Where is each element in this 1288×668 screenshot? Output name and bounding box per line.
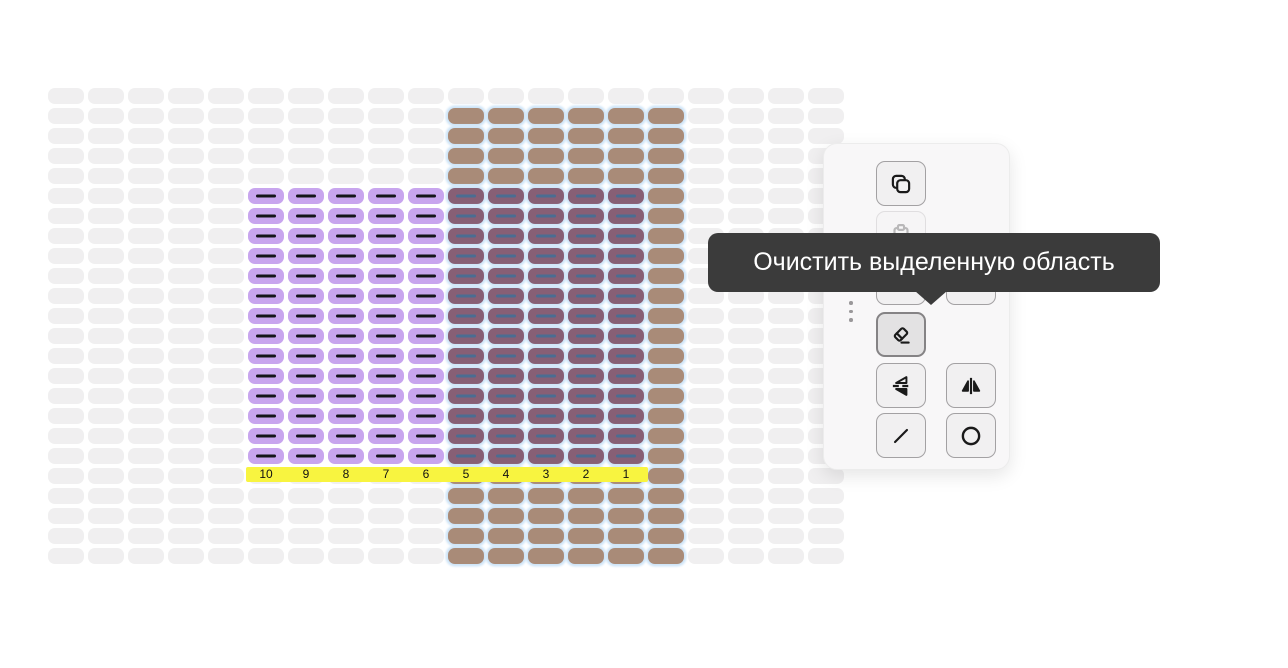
grid-cell[interactable] [448,388,484,404]
grid-cell[interactable] [248,88,284,104]
grid-cell[interactable] [288,508,324,524]
grid-cell[interactable] [768,348,804,364]
grid-cell[interactable] [488,268,524,284]
grid-cell[interactable] [328,368,364,384]
grid-cell[interactable] [448,548,484,564]
grid-cell[interactable] [288,528,324,544]
grid-cell[interactable] [768,508,804,524]
grid-cell[interactable] [448,508,484,524]
grid-cell[interactable] [608,368,644,384]
grid-cell[interactable] [208,228,244,244]
grid-cell[interactable] [608,108,644,124]
circle-tool-button[interactable] [946,413,996,458]
grid-cell[interactable] [128,388,164,404]
grid-cell[interactable] [808,128,844,144]
grid-cell[interactable] [248,268,284,284]
grid-cell[interactable] [88,248,124,264]
grid-cell[interactable] [128,428,164,444]
grid-cell[interactable] [488,548,524,564]
grid-cell[interactable] [88,408,124,424]
grid-cell[interactable] [568,228,604,244]
grid-cell[interactable] [608,528,644,544]
grid-cell[interactable] [728,148,764,164]
grid-cell[interactable] [128,108,164,124]
grid-cell[interactable] [328,508,364,524]
grid-cell[interactable] [648,428,684,444]
grid-cell[interactable] [688,308,724,324]
grid-cell[interactable] [128,508,164,524]
grid-cell[interactable] [168,248,204,264]
grid-cell[interactable] [248,508,284,524]
grid-cell[interactable] [368,368,404,384]
grid-cell[interactable] [48,508,84,524]
grid-cell[interactable] [88,228,124,244]
grid-cell[interactable] [328,228,364,244]
grid-cell[interactable] [168,388,204,404]
grid-cell[interactable] [208,188,244,204]
grid-cell[interactable] [488,528,524,544]
grid-cell[interactable] [568,448,604,464]
grid-cell[interactable] [528,448,564,464]
grid-cell[interactable] [128,488,164,504]
grid-cell[interactable] [128,468,164,484]
grid-cell[interactable] [368,528,404,544]
grid-cell[interactable] [288,368,324,384]
grid-cell[interactable] [608,228,644,244]
grid-cell[interactable] [688,168,724,184]
grid-cell[interactable] [568,268,604,284]
grid-cell[interactable] [328,448,364,464]
grid-cell[interactable] [88,528,124,544]
grid-cell[interactable] [688,368,724,384]
grid-cell[interactable] [808,108,844,124]
grid-cell[interactable] [368,128,404,144]
grid-cell[interactable] [128,128,164,144]
grid-cell[interactable] [488,148,524,164]
grid-cell[interactable] [648,208,684,224]
grid-cell[interactable] [288,148,324,164]
grid-cell[interactable] [328,308,364,324]
grid-cell[interactable] [248,348,284,364]
grid-cell[interactable] [528,288,564,304]
grid-cell[interactable] [688,188,724,204]
grid-cell[interactable] [608,88,644,104]
grid-cell[interactable] [688,468,724,484]
grid-cell[interactable] [88,368,124,384]
grid-cell[interactable] [768,428,804,444]
grid-cell[interactable] [728,388,764,404]
grid-cell[interactable] [408,308,444,324]
grid-cell[interactable] [88,348,124,364]
grid-cell[interactable] [768,548,804,564]
grid-cell[interactable] [368,208,404,224]
grid-cell[interactable] [568,248,604,264]
grid-cell[interactable] [48,88,84,104]
grid-cell[interactable] [208,268,244,284]
grid-cell[interactable] [128,288,164,304]
grid-cell[interactable] [688,528,724,544]
grid-cell[interactable] [808,488,844,504]
grid-cell[interactable] [648,128,684,144]
grid-cell[interactable] [408,548,444,564]
grid-cell[interactable] [488,328,524,344]
grid-cell[interactable] [288,348,324,364]
grid-cell[interactable] [168,468,204,484]
grid-cell[interactable] [88,308,124,324]
grid-cell[interactable] [128,88,164,104]
grid-cell[interactable] [248,168,284,184]
grid-cell[interactable] [448,428,484,444]
grid-cell[interactable] [248,488,284,504]
grid-cell[interactable] [328,188,364,204]
grid-cell[interactable] [528,148,564,164]
grid-cell[interactable] [608,188,644,204]
grid-cell[interactable] [808,548,844,564]
grid-cell[interactable] [688,348,724,364]
grid-cell[interactable] [208,448,244,464]
grid-cell[interactable] [248,148,284,164]
grid-cell[interactable] [168,368,204,384]
grid-cell[interactable] [208,388,244,404]
grid-cell[interactable] [88,128,124,144]
grid-cell[interactable] [568,88,604,104]
grid-cell[interactable] [168,88,204,104]
grid-cell[interactable] [48,328,84,344]
grid-cell[interactable] [328,168,364,184]
grid-cell[interactable] [448,168,484,184]
grid-cell[interactable] [408,108,444,124]
grid-cell[interactable] [528,508,564,524]
grid-cell[interactable] [288,408,324,424]
grid-cell[interactable] [528,408,564,424]
grid-cell[interactable] [728,488,764,504]
grid-cell[interactable] [528,308,564,324]
grid-cell[interactable] [328,208,364,224]
grid-cell[interactable] [208,128,244,144]
grid-cell[interactable] [768,168,804,184]
grid-cell[interactable] [408,128,444,144]
grid-cell[interactable] [528,388,564,404]
grid-cell[interactable] [608,208,644,224]
grid-cell[interactable] [168,188,204,204]
grid-cell[interactable] [528,548,564,564]
grid-cell[interactable] [728,428,764,444]
grid-cell[interactable] [168,288,204,304]
grid-cell[interactable] [608,548,644,564]
grid-cell[interactable] [208,328,244,344]
grid-cell[interactable] [88,168,124,184]
grid-cell[interactable] [688,88,724,104]
grid-cell[interactable] [288,208,324,224]
grid-cell[interactable] [288,268,324,284]
grid-cell[interactable] [608,168,644,184]
grid-cell[interactable] [208,208,244,224]
grid-cell[interactable] [808,88,844,104]
grid-cell[interactable] [648,248,684,264]
grid-cell[interactable] [768,448,804,464]
grid-cell[interactable] [808,468,844,484]
grid-cell[interactable] [88,328,124,344]
grid-cell[interactable] [608,248,644,264]
grid-cell[interactable] [248,428,284,444]
grid-cell[interactable] [168,428,204,444]
grid-cell[interactable] [688,108,724,124]
grid-cell[interactable] [808,528,844,544]
grid-cell[interactable] [168,448,204,464]
grid-cell[interactable] [168,268,204,284]
grid-cell[interactable] [208,148,244,164]
grid-cell[interactable] [208,368,244,384]
grid-cell[interactable] [448,108,484,124]
grid-cell[interactable] [648,328,684,344]
grid-cell[interactable] [688,548,724,564]
grid-cell[interactable] [648,548,684,564]
grid-cell[interactable] [648,368,684,384]
grid-cell[interactable] [88,268,124,284]
grid-cell[interactable] [408,228,444,244]
grid-cell[interactable] [208,408,244,424]
grid-cell[interactable] [488,248,524,264]
grid-cell[interactable] [328,248,364,264]
grid-cell[interactable] [768,188,804,204]
grid-cell[interactable] [608,308,644,324]
grid-cell[interactable] [328,348,364,364]
grid-cell[interactable] [408,368,444,384]
grid-cell[interactable] [768,308,804,324]
grid-cell[interactable] [768,468,804,484]
grid-cell[interactable] [568,408,604,424]
grid-cell[interactable] [488,208,524,224]
grid-cell[interactable] [368,168,404,184]
grid-cell[interactable] [448,348,484,364]
grid-cell[interactable] [128,248,164,264]
grid-cell[interactable] [88,428,124,444]
grid-cell[interactable] [128,188,164,204]
grid-cell[interactable] [648,408,684,424]
grid-cell[interactable] [328,408,364,424]
grid-cell[interactable] [608,388,644,404]
grid-cell[interactable] [368,108,404,124]
grid-cell[interactable] [128,228,164,244]
grid-cell[interactable] [528,268,564,284]
grid-cell[interactable] [248,368,284,384]
grid-cell[interactable] [688,508,724,524]
grid-cell[interactable] [368,488,404,504]
grid-cell[interactable] [448,208,484,224]
grid-cell[interactable] [128,328,164,344]
grid-cell[interactable] [128,168,164,184]
grid-cell[interactable] [488,288,524,304]
grid-cell[interactable] [48,168,84,184]
grid-cell[interactable] [448,488,484,504]
grid-cell[interactable] [168,528,204,544]
grid-cell[interactable] [368,248,404,264]
grid-cell[interactable] [208,108,244,124]
grid-cell[interactable] [368,428,404,444]
grid-cell[interactable] [528,168,564,184]
grid-cell[interactable] [648,348,684,364]
grid-cell[interactable] [728,468,764,484]
grid-cell[interactable] [368,188,404,204]
grid-cell[interactable] [168,328,204,344]
grid-cell[interactable] [488,408,524,424]
grid-cell[interactable] [728,128,764,144]
grid-cell[interactable] [568,348,604,364]
grid-cell[interactable] [528,528,564,544]
grid-cell[interactable] [128,208,164,224]
grid-cell[interactable] [248,248,284,264]
grid-cell[interactable] [288,88,324,104]
grid-cell[interactable] [208,488,244,504]
grid-cell[interactable] [368,388,404,404]
grid-cell[interactable] [168,208,204,224]
grid-cell[interactable] [48,468,84,484]
grid-cell[interactable] [408,268,444,284]
grid-cell[interactable] [168,508,204,524]
grid-cell[interactable] [448,88,484,104]
grid-cell[interactable] [88,288,124,304]
grid-cell[interactable] [568,168,604,184]
grid-cell[interactable] [128,548,164,564]
grid-cell[interactable] [288,168,324,184]
grid-cell[interactable] [568,328,604,344]
grid-cell[interactable] [288,428,324,444]
grid-cell[interactable] [408,428,444,444]
grid-cell[interactable] [568,368,604,384]
grid-cell[interactable] [128,268,164,284]
grid-cell[interactable] [528,128,564,144]
grid-cell[interactable] [488,308,524,324]
grid-cell[interactable] [488,168,524,184]
grid-cell[interactable] [768,388,804,404]
grid-cell[interactable] [128,148,164,164]
grid-cell[interactable] [448,228,484,244]
grid-cell[interactable] [528,88,564,104]
grid-cell[interactable] [248,228,284,244]
grid-cell[interactable] [328,108,364,124]
grid-cell[interactable] [208,348,244,364]
grid-cell[interactable] [488,348,524,364]
grid-cell[interactable] [168,408,204,424]
grid-cell[interactable] [408,348,444,364]
grid-cell[interactable] [88,508,124,524]
grid-cell[interactable] [448,528,484,544]
grid-cell[interactable] [208,528,244,544]
grid-cell[interactable] [288,388,324,404]
grid-cell[interactable] [248,308,284,324]
grid-cell[interactable] [48,488,84,504]
flip-horizontal-button[interactable] [946,363,996,408]
grid-cell[interactable] [128,348,164,364]
grid-cell[interactable] [648,108,684,124]
grid-cell[interactable] [368,268,404,284]
grid-cell[interactable] [48,408,84,424]
grid-cell[interactable] [488,88,524,104]
grid-cell[interactable] [168,308,204,324]
grid-cell[interactable] [488,188,524,204]
grid-cell[interactable] [648,468,684,484]
grid-cell[interactable] [208,168,244,184]
grid-cell[interactable] [688,328,724,344]
grid-cell[interactable] [728,108,764,124]
grid-cell[interactable] [288,288,324,304]
grid-cell[interactable] [568,508,604,524]
grid-cell[interactable] [208,468,244,484]
grid-cell[interactable] [88,448,124,464]
grid-cell[interactable] [48,288,84,304]
grid-cell[interactable] [608,128,644,144]
grid-cell[interactable] [528,328,564,344]
grid-cell[interactable] [48,428,84,444]
grid-cell[interactable] [448,288,484,304]
grid-cell[interactable] [88,188,124,204]
grid-cell[interactable] [368,228,404,244]
grid-cell[interactable] [88,148,124,164]
grid-cell[interactable] [408,88,444,104]
grid-cell[interactable] [288,228,324,244]
grid-cell[interactable] [88,468,124,484]
grid-cell[interactable] [168,228,204,244]
grid-cell[interactable] [408,328,444,344]
grid-cell[interactable] [768,128,804,144]
grid-cell[interactable] [448,148,484,164]
grid-cell[interactable] [448,408,484,424]
grid-cell[interactable] [768,488,804,504]
grid-cell[interactable] [368,288,404,304]
grid-cell[interactable] [328,288,364,304]
grid-cell[interactable] [48,188,84,204]
grid-cell[interactable] [288,248,324,264]
grid-cell[interactable] [448,248,484,264]
grid-cell[interactable] [728,308,764,324]
grid-cell[interactable] [208,548,244,564]
eraser-button[interactable] [876,312,926,357]
grid-cell[interactable] [408,488,444,504]
grid-cell[interactable] [528,348,564,364]
grid-cell[interactable] [528,488,564,504]
grid-cell[interactable] [128,368,164,384]
grid-cell[interactable] [328,528,364,544]
grid-cell[interactable] [328,488,364,504]
grid-cell[interactable] [728,208,764,224]
grid-cell[interactable] [248,108,284,124]
grid-cell[interactable] [608,508,644,524]
grid-cell[interactable] [208,508,244,524]
grid-cell[interactable] [408,388,444,404]
grid-cell[interactable] [688,388,724,404]
grid-cell[interactable] [168,108,204,124]
grid-cell[interactable] [608,268,644,284]
grid-cell[interactable] [728,188,764,204]
grid-cell[interactable] [688,408,724,424]
grid-cell[interactable] [488,388,524,404]
grid-cell[interactable] [248,528,284,544]
grid-cell[interactable] [728,88,764,104]
grid-cell[interactable] [768,88,804,104]
grid-cell[interactable] [248,408,284,424]
grid-cell[interactable] [528,248,564,264]
grid-cell[interactable] [728,528,764,544]
grid-cell[interactable] [248,188,284,204]
grid-cell[interactable] [408,508,444,524]
grid-cell[interactable] [248,208,284,224]
grid-cell[interactable] [48,248,84,264]
grid-cell[interactable] [288,448,324,464]
grid-cell[interactable] [768,148,804,164]
grid-cell[interactable] [768,528,804,544]
grid-cell[interactable] [608,408,644,424]
grid-cell[interactable] [568,528,604,544]
